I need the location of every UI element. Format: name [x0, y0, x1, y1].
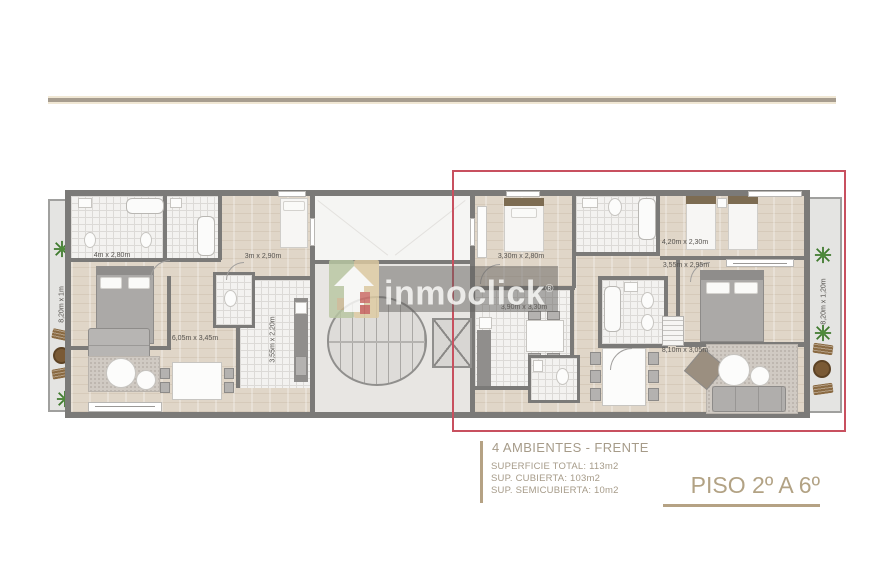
chair: [160, 382, 170, 393]
bed-pillow: [100, 277, 122, 289]
courtyard: [315, 196, 470, 262]
toilet: [84, 232, 96, 248]
floor-range-label: PISO 2º A 6º: [600, 472, 820, 499]
floor-plan-page: 8,20m x 1m 8,20m x 1,20m: [0, 0, 884, 576]
superficie-total: SUPERFICIE TOTAL: 113m2: [491, 461, 618, 472]
wall: [218, 196, 222, 260]
window: [310, 218, 315, 246]
toilet: [140, 232, 152, 248]
bed-headboard: [96, 266, 154, 275]
toilet: [224, 290, 237, 307]
chair: [224, 382, 234, 393]
dining-table: [172, 362, 222, 400]
registered-mark: ®: [545, 283, 554, 295]
window: [278, 191, 306, 197]
window-sill: [88, 402, 162, 412]
room-size-label: 6,05m x 3,45m: [155, 334, 235, 343]
chair: [160, 368, 170, 379]
unit-title: 4 AMBIENTES - FRENTE: [492, 440, 649, 455]
room-size-label: 3m x 2,90m: [223, 252, 303, 261]
info-accent-bar: [480, 441, 483, 503]
bed-pillow: [283, 201, 305, 211]
chair: [224, 368, 234, 379]
top-divider-rule: [48, 98, 836, 102]
bed-pillow: [128, 277, 150, 289]
sup-cubierta: SUP. CUBIERTA: 103m2: [491, 473, 600, 484]
bathtub: [126, 198, 164, 214]
room-size-label: 3,55m x 2,20m: [269, 300, 278, 380]
watermark-band: inmoclick®: [379, 266, 558, 312]
floor-label-underline: [663, 504, 820, 507]
sink: [170, 198, 182, 208]
room-size-label: 4m x 2,80m: [72, 251, 152, 260]
stove: [295, 302, 307, 314]
coffee-table: [106, 358, 136, 388]
kitchen-appliance: [295, 356, 307, 376]
watermark-brand-text: inmoclick: [384, 274, 545, 312]
inmoclick-house-icon: [329, 260, 379, 318]
sink: [78, 198, 92, 208]
side-table: [136, 370, 156, 390]
bathtub: [197, 216, 215, 256]
